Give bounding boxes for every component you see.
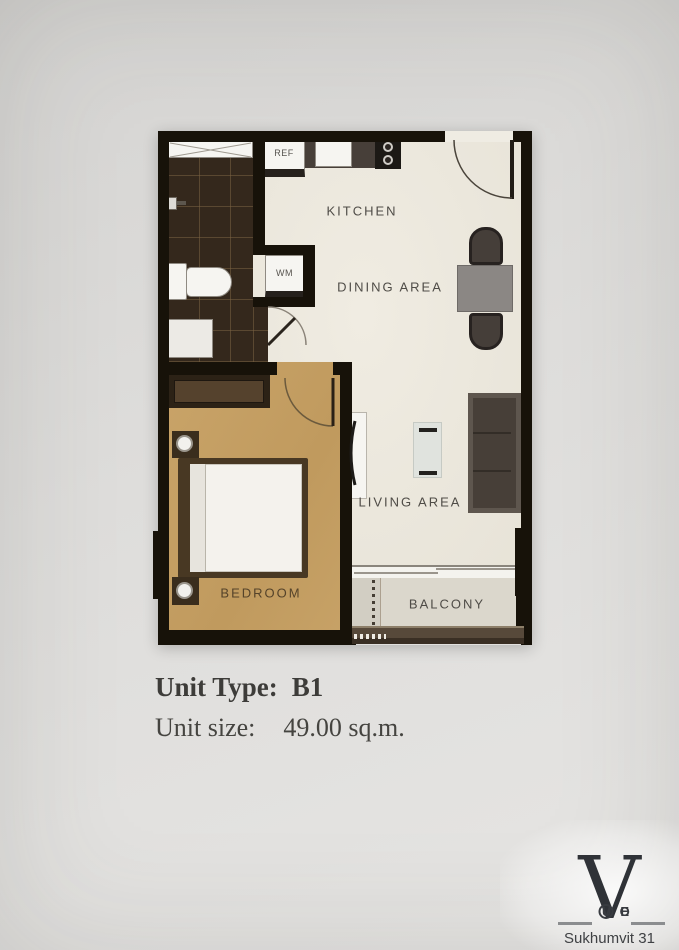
unit-type-row: Unit Type: B1 [155, 672, 405, 703]
room-label-living: LIVING AREA [359, 495, 462, 510]
room-label-bedroom: BEDROOM [220, 586, 301, 601]
bathroom-door-leaf [268, 318, 295, 345]
entrance-door-arc [454, 140, 512, 198]
unit-type-value: B1 [292, 672, 324, 703]
bedroom-door-arc [285, 378, 333, 426]
vogue-letters-right: UE [602, 904, 638, 919]
unit-type-label: Unit Type: [155, 672, 278, 703]
brand-logo: V VO UE Sukhumvit 31 [540, 838, 679, 950]
vogue-wordmark: VO UE [602, 904, 617, 919]
unit-info: Unit Type: B1 Unit size: 49.00 sq.m. [155, 672, 405, 743]
brochure-page: REF WM [0, 0, 679, 950]
room-label-balcony: BALCONY [409, 597, 485, 612]
room-label-kitchen: KITCHEN [326, 204, 397, 219]
room-label-dining: DINING AREA [337, 280, 443, 295]
unit-size-value: 49.00 sq.m. [283, 713, 404, 743]
logo-tagline-rule [558, 922, 592, 925]
unit-size-row: Unit size: 49.00 sq.m. [155, 713, 405, 743]
logo-tagline-rule [631, 922, 665, 925]
floor-plan: REF WM [158, 131, 532, 645]
tv-icon [351, 421, 355, 485]
project-location: Sukhumvit 31 [564, 930, 655, 947]
unit-size-label: Unit size: [155, 713, 255, 743]
